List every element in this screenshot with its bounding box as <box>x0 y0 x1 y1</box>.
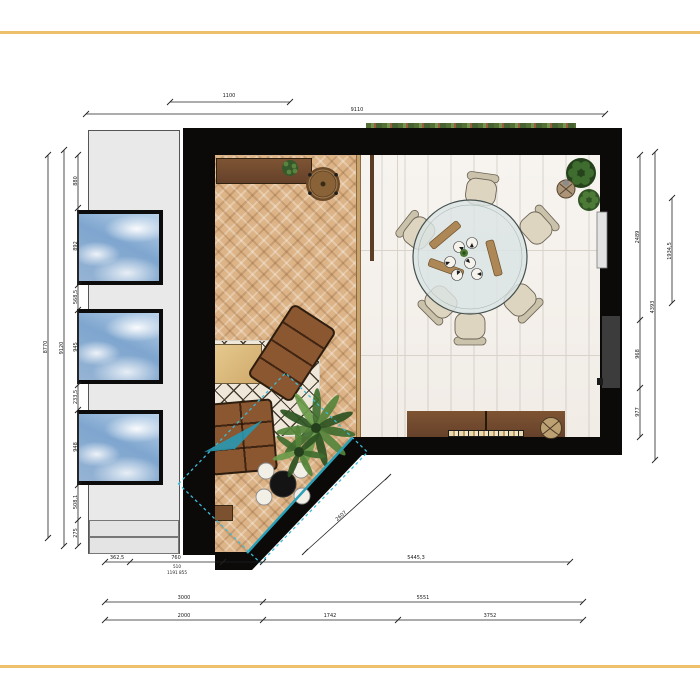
stool[interactable] <box>294 488 310 504</box>
stool[interactable] <box>256 489 272 505</box>
dimension-label: 892 <box>73 241 79 251</box>
dimension-label: 3752 <box>484 613 497 619</box>
entry-door[interactable] <box>602 316 620 388</box>
side-window[interactable] <box>597 212 607 268</box>
dimension-label: 1934,5 <box>667 242 673 260</box>
dimension-label: 1100 <box>223 93 236 99</box>
dimension-label: 275 <box>73 528 79 538</box>
dimension-label: 760 <box>171 555 181 561</box>
door-handle <box>597 378 603 385</box>
dimension-label: 2000 <box>178 613 191 619</box>
dimension-label: 977 <box>635 407 641 417</box>
game-table[interactable] <box>270 471 296 497</box>
dimension-label: 3000 <box>178 595 191 601</box>
dining-table[interactable] <box>413 200 527 314</box>
partition-fin-wall <box>370 155 374 261</box>
stool[interactable] <box>258 463 274 479</box>
rattan-side-table[interactable] <box>306 167 340 201</box>
dimension-label: 568,5 <box>73 290 79 304</box>
dimension-label: 2489 <box>635 231 641 244</box>
dimension-label: 5551 <box>417 595 430 601</box>
floor-plan-canvas: 1100 9110 8770 9120 880 892 568,5 945 23… <box>0 0 700 700</box>
dimension-label: 4393 <box>650 301 656 314</box>
dining-table-set[interactable] <box>394 171 561 345</box>
dimension-label: 9110 <box>351 107 364 113</box>
sideboard-plant <box>282 160 298 176</box>
dimension-label: 2607 <box>335 510 348 523</box>
dimension-label: 8770 <box>43 341 49 354</box>
dimension-label: 510 <box>173 564 181 569</box>
corner-plants[interactable] <box>557 158 600 211</box>
basket[interactable] <box>541 418 562 439</box>
plan-overlay: 1100 9110 8770 9120 880 892 568,5 945 23… <box>0 0 700 700</box>
dining-chair[interactable] <box>454 313 486 345</box>
dimension-label: 5445,3 <box>407 555 425 561</box>
dimension-label: 1742 <box>324 613 337 619</box>
exterior-walls <box>183 128 622 570</box>
dimension-label: 1191 855 <box>167 570 187 575</box>
dimension-label: 508,1 <box>73 495 79 509</box>
dimension-label: 948 <box>73 442 79 452</box>
dimension-label: 968 <box>635 349 641 359</box>
game-table-and-stools[interactable] <box>256 462 310 505</box>
dimension-label: 9120 <box>59 342 65 355</box>
dimension-label: 945 <box>73 342 79 352</box>
dimension-label: 362,5 <box>110 555 124 561</box>
dimension-label: 880 <box>73 176 79 186</box>
dimension-label: 233,5 <box>73 390 79 404</box>
